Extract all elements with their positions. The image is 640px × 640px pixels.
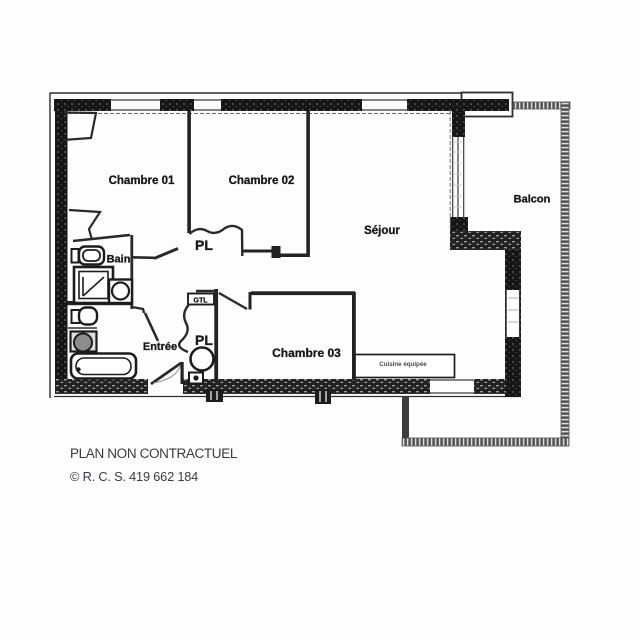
svg-text:PLAN NON CONTRACTUEL: PLAN NON CONTRACTUEL [70, 446, 238, 461]
svg-text:Chambre 02: Chambre 02 [229, 175, 295, 187]
svg-text:Chambre 01: Chambre 01 [109, 175, 175, 187]
svg-text:Chambre 03: Chambre 03 [272, 346, 341, 360]
svg-text:Séjour: Séjour [364, 225, 400, 237]
svg-text:Bain: Bain [107, 254, 131, 266]
svg-text:PL: PL [195, 332, 213, 348]
svg-text:Entrée: Entrée [143, 341, 177, 353]
svg-text:Balcon: Balcon [514, 194, 551, 206]
svg-text:GTL: GTL [194, 298, 209, 305]
svg-text:Cuisine équipée: Cuisine équipée [379, 361, 427, 368]
svg-text:PL: PL [195, 237, 213, 253]
svg-text:© R. C. S. 419 662 184: © R. C. S. 419 662 184 [70, 469, 198, 484]
